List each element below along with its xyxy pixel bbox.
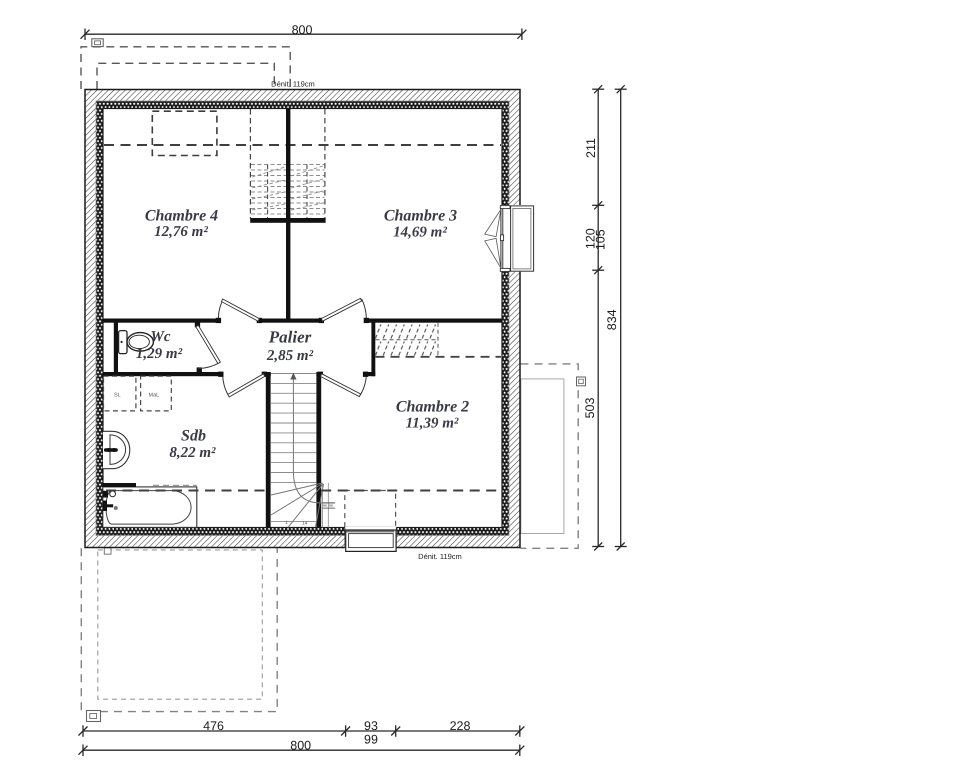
svg-text:Dénit. 119cm: Dénit. 119cm [271,80,315,89]
svg-text:SL: SL [114,393,121,399]
svg-text:Sdb: Sdb [181,428,206,445]
svg-text:834: 834 [605,309,619,330]
svg-text:1,29 m²: 1,29 m² [136,346,183,362]
svg-text:14,69 m²: 14,69 m² [393,225,447,241]
svg-text:Chambre 4: Chambre 4 [145,208,218,225]
svg-text:11,39 m²: 11,39 m² [406,416,459,432]
svg-text:1: 1 [285,520,288,526]
svg-text:Palier: Palier [268,328,312,347]
svg-text:105: 105 [593,229,607,250]
svg-text:14: 14 [302,521,308,527]
svg-text:Dénit. 119cm: Dénit. 119cm [418,552,462,561]
svg-text:800: 800 [290,739,311,753]
svg-text:2,85 m²: 2,85 m² [266,348,314,364]
svg-text:211: 211 [584,138,598,158]
svg-text:8,22 m²: 8,22 m² [169,445,216,461]
svg-text:476: 476 [203,719,224,733]
svg-text:99: 99 [364,733,378,747]
svg-text:503: 503 [583,398,597,419]
svg-text:Chambre 3: Chambre 3 [384,208,457,225]
svg-text:Wc: Wc [151,329,171,345]
svg-text:800: 800 [292,23,313,37]
svg-text:Chambre 2: Chambre 2 [396,399,469,416]
svg-text:93: 93 [364,719,378,733]
svg-text:228: 228 [450,719,471,733]
svg-text:MaL: MaL [149,393,160,399]
svg-text:12,76 m²: 12,76 m² [154,224,208,240]
